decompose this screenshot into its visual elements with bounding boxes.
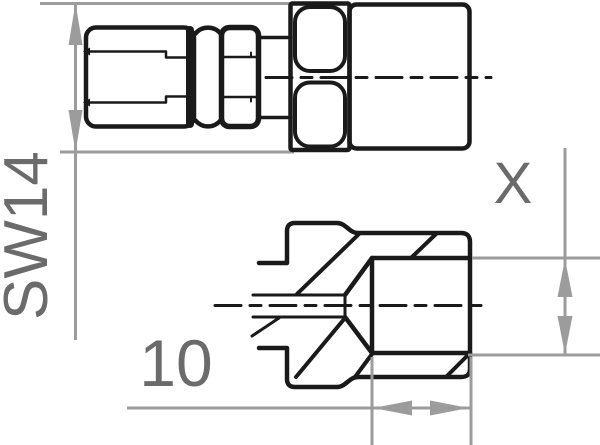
hex-flat-bottom <box>295 83 345 147</box>
arrow-up-icon <box>558 259 573 297</box>
arrow-down-icon <box>558 316 573 354</box>
arrow-right-icon <box>430 401 469 416</box>
fitting-section-view <box>215 223 490 387</box>
socket-bore-line-bottom <box>89 97 187 103</box>
pipe-chamfer-tick <box>252 318 279 336</box>
arrow-left-icon <box>373 401 412 416</box>
arrow-up-icon <box>69 3 83 45</box>
drawing-canvas: SW14 <box>0 0 600 445</box>
hatch-line <box>296 318 345 377</box>
x-dimension <box>468 148 600 355</box>
sw14-label: SW14 <box>0 151 61 320</box>
collar-outline <box>222 28 259 127</box>
depth-label: 10 <box>139 326 212 400</box>
x-label: X <box>494 151 533 216</box>
socket-outline <box>86 28 194 127</box>
hose-bulge-bottom <box>195 120 221 126</box>
hex-flat-top <box>295 7 345 71</box>
hose-bulge-top <box>195 28 221 34</box>
hatch-line <box>355 354 372 377</box>
fitting-side-view <box>83 4 491 151</box>
arrow-down-icon <box>69 110 83 152</box>
hatch-line <box>412 234 436 257</box>
hatch-line <box>446 354 469 377</box>
fitting-drawing: SW14 <box>0 0 600 445</box>
socket-bore-line-top <box>89 52 187 58</box>
